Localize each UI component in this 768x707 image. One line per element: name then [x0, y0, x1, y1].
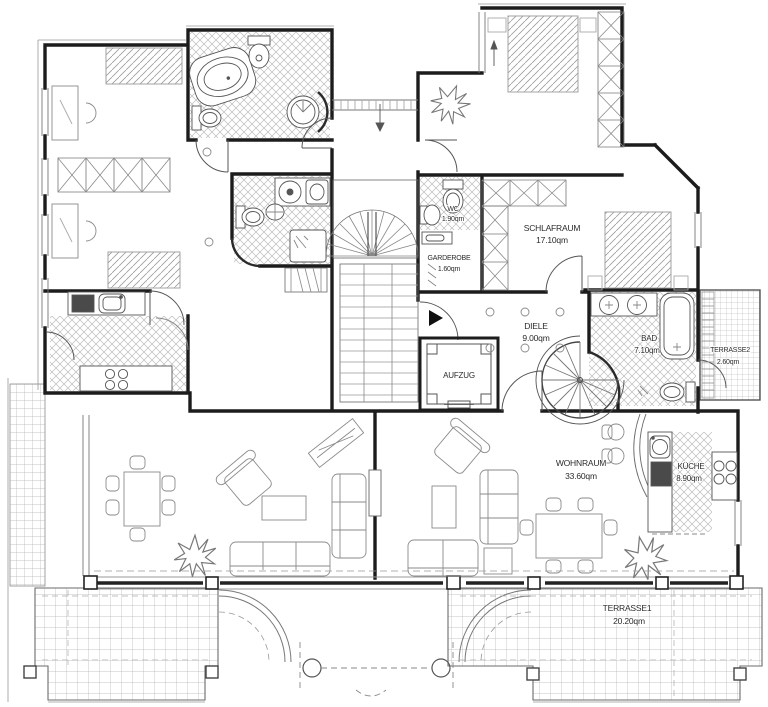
- entrance-arrow: [429, 310, 443, 326]
- label-kueche-name: KÜCHE: [677, 462, 704, 471]
- label-terrasse2-name: TERRASSE2: [710, 347, 750, 354]
- label-wohnraum-area: 33.60qm: [565, 471, 597, 481]
- label-terrasse2-area: 2.60qm: [717, 359, 740, 366]
- label-aufzug-name: AUFZUG: [443, 371, 475, 380]
- winder-stair: [326, 180, 418, 258]
- label-wc-area: 1.90qm: [442, 216, 465, 223]
- label-diele-area: 9.00qm: [522, 333, 549, 343]
- label-terrasse1-name: TERRASSE1: [603, 603, 652, 613]
- floor-plan-drawing: WC 1.90qm GARDEROBE 1.60qm SCHLAFRAUM 17…: [0, 0, 768, 707]
- label-kueche-area: 8.90qm: [676, 474, 702, 483]
- label-diele-name: DIELE: [524, 321, 548, 331]
- living-left-furniture: [106, 419, 381, 576]
- room-labels: WC 1.90qm GARDEROBE 1.60qm SCHLAFRAUM 17…: [428, 206, 751, 626]
- label-schlafraum-name: SCHLAFRAUM: [524, 223, 581, 233]
- label-schlafraum-area: 17.10qm: [536, 235, 568, 245]
- living-right-furniture: [408, 414, 652, 576]
- label-bad-area: 7.10qm: [634, 346, 660, 355]
- label-terrasse1-area: 20.20qm: [613, 616, 645, 626]
- label-wohnraum-name: WOHNRAUM: [556, 458, 606, 468]
- label-bad-name: BAD: [641, 334, 657, 343]
- straight-stair: [340, 264, 418, 402]
- label-wc-name: WC: [447, 206, 458, 213]
- floor-plan: WC 1.90qm GARDEROBE 1.60qm SCHLAFRAUM 17…: [0, 0, 768, 707]
- label-garderobe-name: GARDEROBE: [428, 255, 471, 262]
- label-garderobe-area: 1.60qm: [438, 266, 461, 273]
